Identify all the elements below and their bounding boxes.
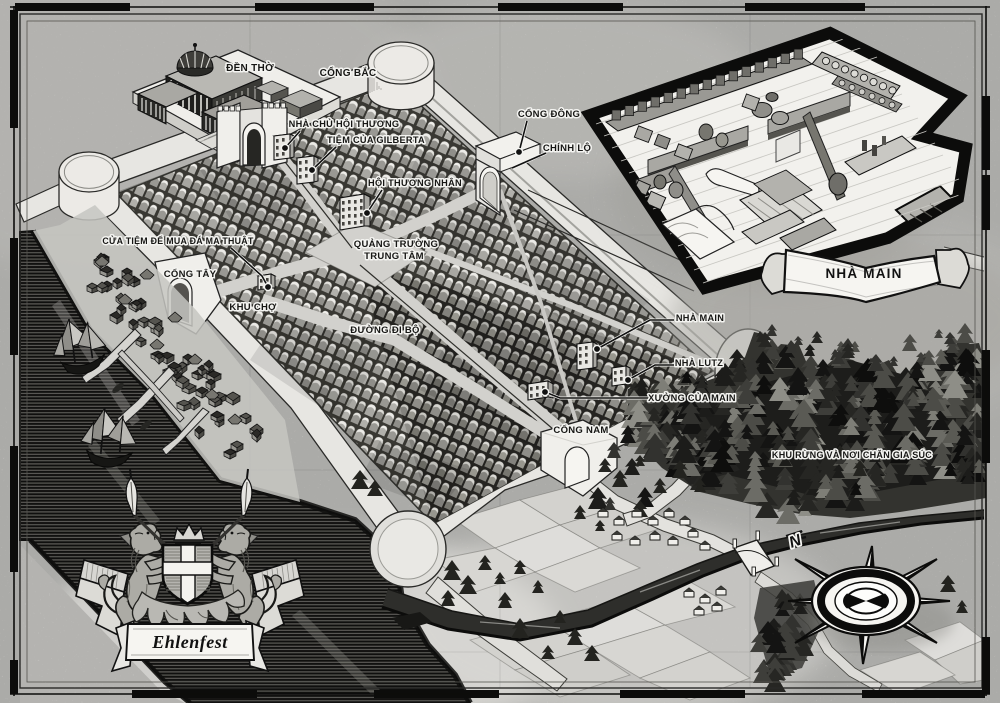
svg-text:NHÀ MAIN: NHÀ MAIN [825,266,902,281]
svg-text:ĐƯỜNG ĐI BỘ: ĐƯỜNG ĐI BỘ [350,324,419,336]
svg-text:KHU RỪNG VÀ NƠI CHĂN GIA SÚC: KHU RỪNG VÀ NƠI CHĂN GIA SÚC [772,449,932,460]
svg-text:QUẢNG TRƯỜNG: QUẢNG TRƯỜNG [354,238,439,250]
svg-text:CỔNG BẮC: CỔNG BẮC [320,66,377,79]
svg-text:NHÀ LUTZ: NHÀ LUTZ [675,357,723,368]
svg-text:HỘI THƯƠNG NHÂN: HỘI THƯƠNG NHÂN [368,177,462,188]
svg-text:CỬA TIỆM ĐỂ MUA ĐÁ MA THUẬT: CỬA TIỆM ĐỂ MUA ĐÁ MA THUẬT [102,235,254,246]
svg-text:Ehlenfest: Ehlenfest [151,632,228,652]
svg-text:NHÀ CHỦ HỘI THƯƠNG: NHÀ CHỦ HỘI THƯƠNG [289,118,400,129]
svg-text:CỔNG NAM: CỔNG NAM [553,424,608,436]
svg-text:CỔNG ĐÔNG: CỔNG ĐÔNG [518,108,580,120]
svg-text:ĐỀN THỜ: ĐỀN THỜ [226,61,274,74]
svg-text:KHU CHỢ: KHU CHỢ [229,302,277,313]
svg-text:NHÀ MAIN: NHÀ MAIN [676,312,724,323]
svg-text:XƯỞNG CỦA MAIN: XƯỞNG CỦA MAIN [648,392,736,403]
svg-text:TIỆM CỦA GILBERTA: TIỆM CỦA GILBERTA [327,134,425,145]
svg-text:CHÍNH LỘ: CHÍNH LỘ [543,142,591,154]
svg-text:CỔNG TÂY: CỔNG TÂY [164,268,217,280]
svg-text:TRUNG TÂM: TRUNG TÂM [364,250,424,262]
